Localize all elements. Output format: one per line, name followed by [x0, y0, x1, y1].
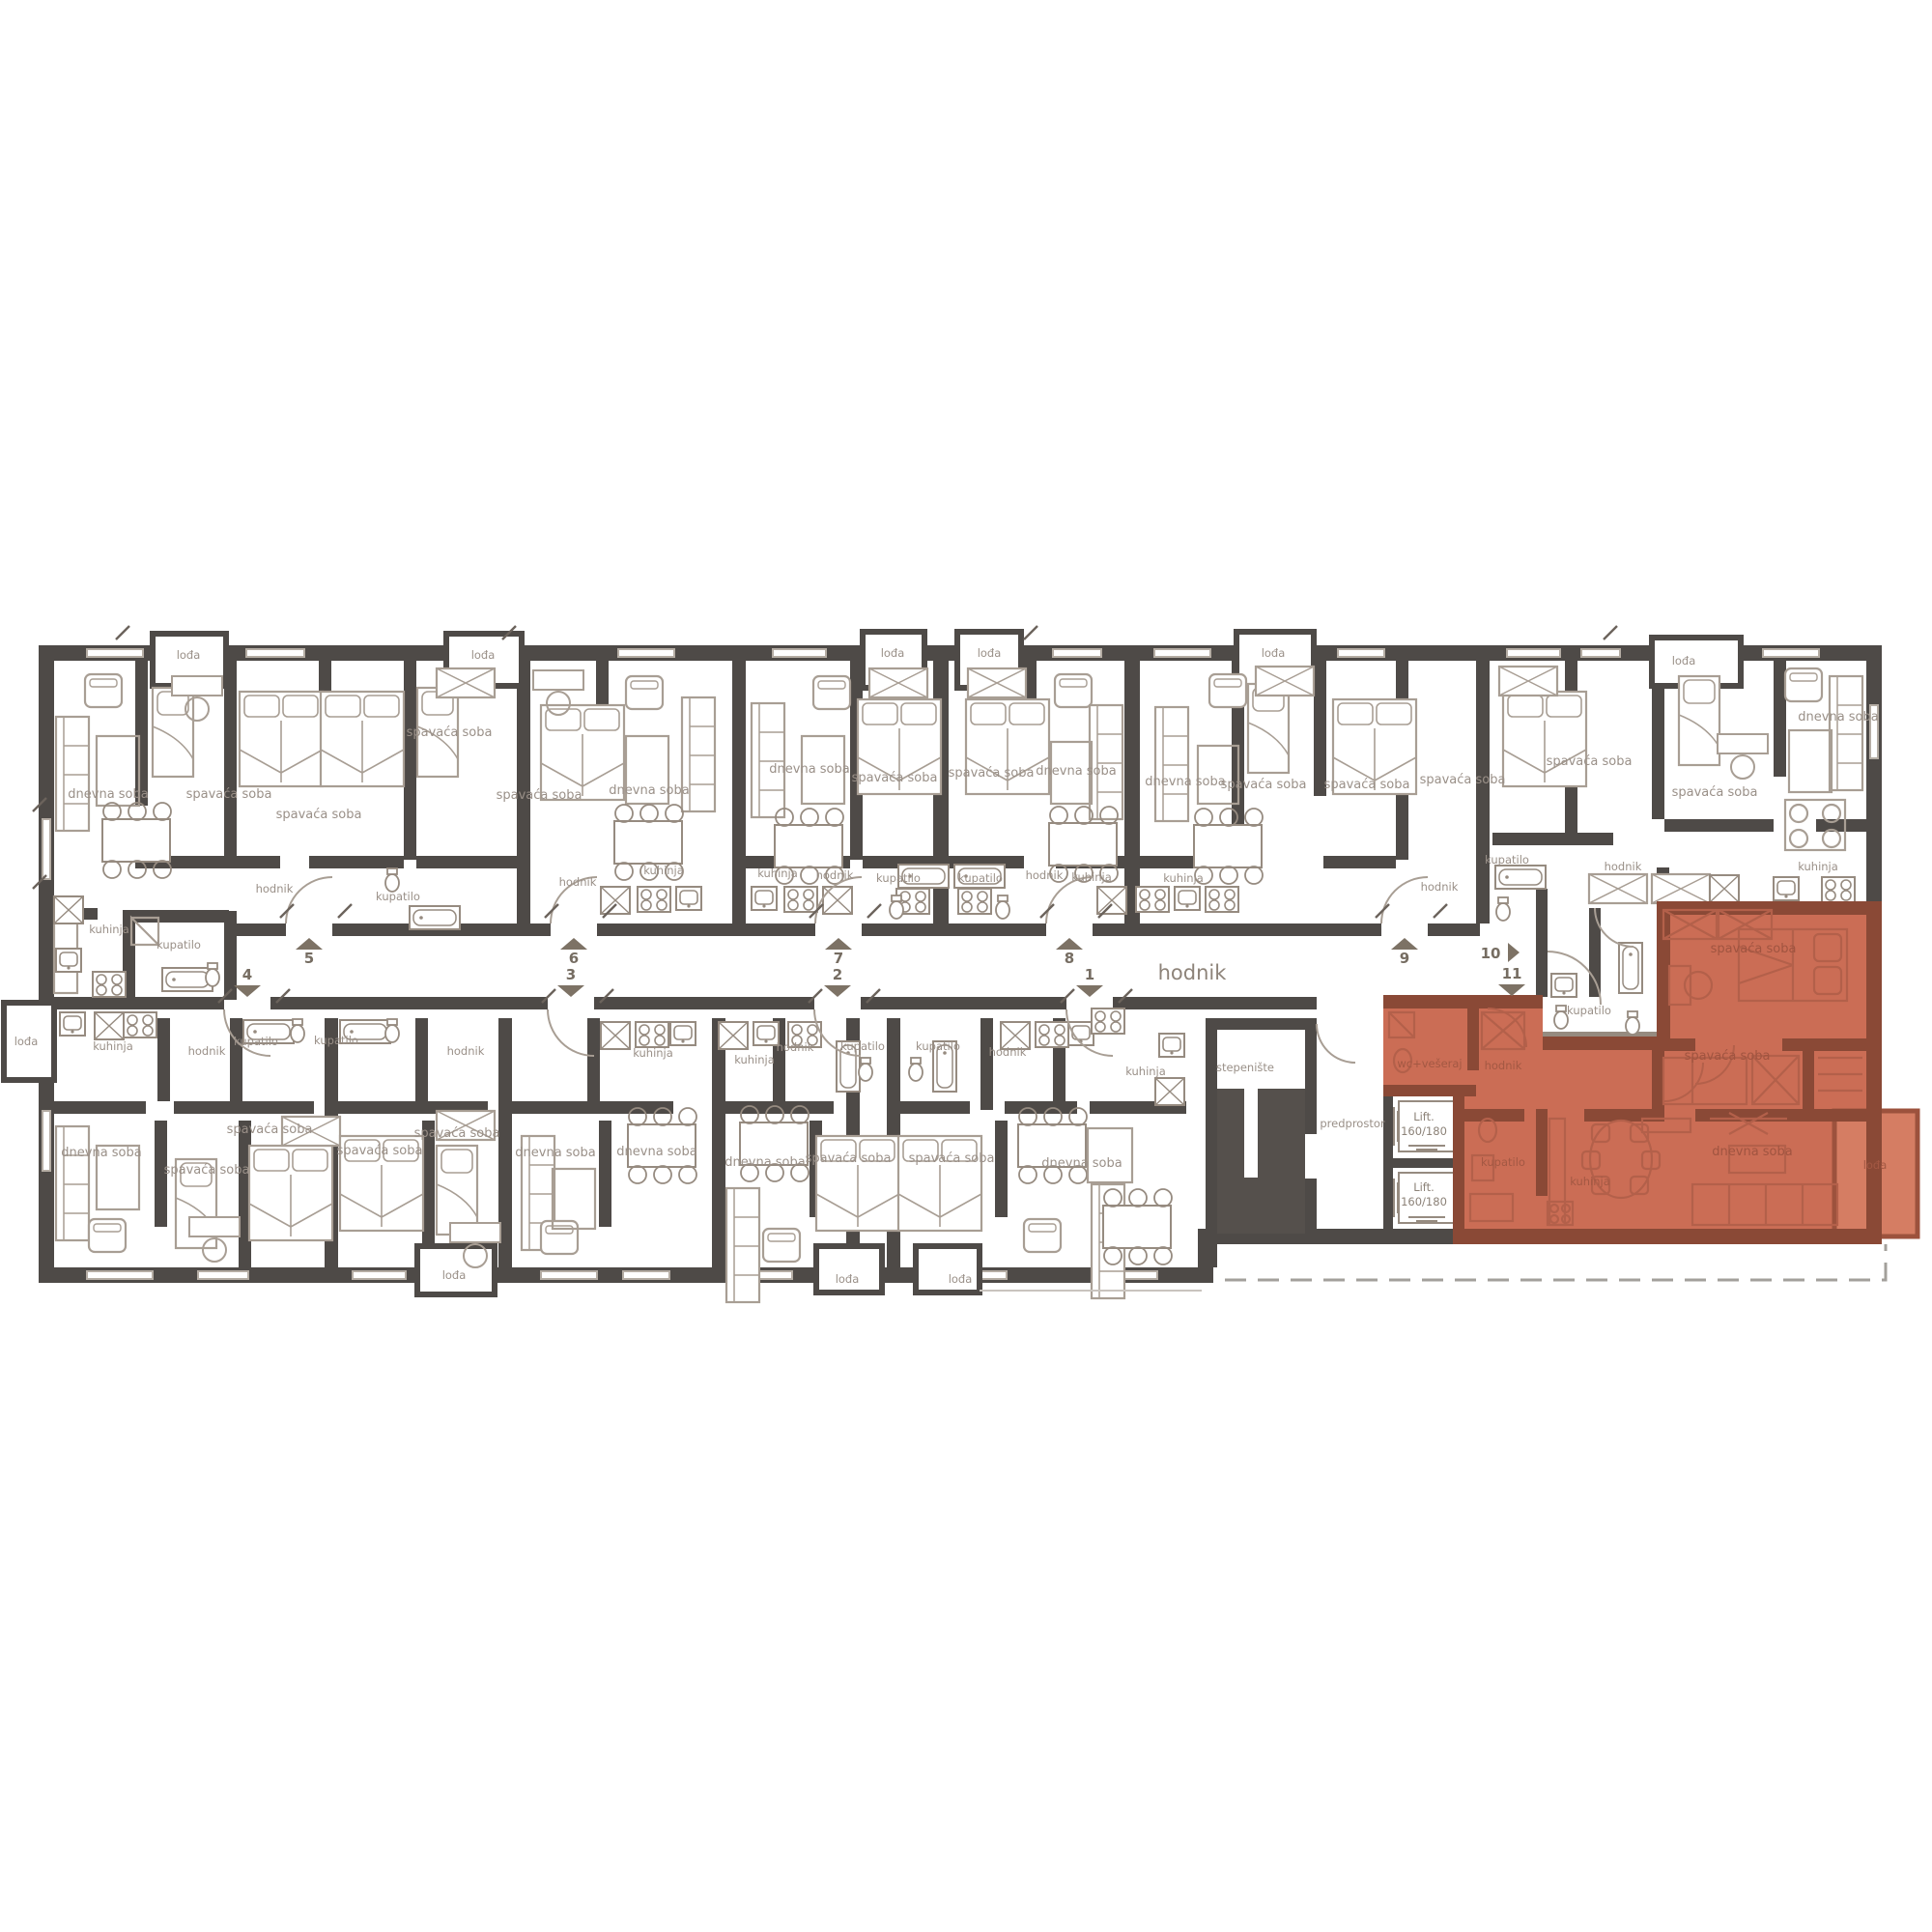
- room-label: spavaća soba: [276, 808, 362, 822]
- room-label: kuhinja: [1798, 860, 1838, 873]
- room-label: spavaća soba: [164, 1163, 250, 1178]
- room-label: spavaća soba: [186, 787, 272, 802]
- staircase: [1206, 1018, 1317, 1267]
- unit-marker-11: 11: [1498, 965, 1525, 996]
- room-label: dnevna soba: [61, 1146, 141, 1160]
- room-label: hodnik: [447, 1044, 485, 1058]
- room-label: spavaća soba: [497, 788, 582, 803]
- room-label: kupatilo: [916, 1039, 960, 1053]
- room-label: dnevna soba: [724, 1155, 805, 1170]
- room-label: dnevna soba: [1145, 775, 1225, 789]
- unit-11-highlighted[interactable]: [1383, 901, 1918, 1244]
- room-label: kupatilo: [376, 890, 420, 903]
- room-label: dnevna soba: [1798, 710, 1878, 724]
- entrance-arrow-right: [1508, 943, 1520, 962]
- room-label: hodnik: [816, 868, 854, 882]
- room-label: hodnik: [989, 1045, 1027, 1059]
- room-label: spavaća soba: [852, 771, 938, 785]
- svg-text:3: 3: [566, 966, 576, 983]
- room-label: lođa: [442, 1268, 467, 1282]
- entrance-arrow-down: [824, 985, 851, 997]
- svg-text:4: 4: [242, 966, 252, 983]
- room-label: spavaća soba: [806, 1151, 892, 1166]
- room-label: spavaća soba: [1221, 778, 1307, 792]
- entrance-arrow-down: [234, 985, 261, 997]
- room-label: spavaća soba: [1324, 778, 1410, 792]
- room-label: dnevna soba: [68, 787, 148, 802]
- svg-text:2: 2: [833, 966, 842, 983]
- unit-marker-2: 2: [824, 966, 851, 997]
- room-label: lođa: [1262, 646, 1286, 660]
- unit-marker-1: 1: [1076, 966, 1103, 997]
- room-label: kuhinja: [633, 1046, 673, 1060]
- unit-marker-9: 9: [1391, 938, 1418, 967]
- room-label: kupatilo: [314, 1034, 358, 1047]
- room-label: kuhinja: [1071, 870, 1112, 884]
- entrance-arrow-up: [1056, 938, 1083, 950]
- room-label: kupatilo: [876, 871, 921, 885]
- room-label: lođa: [1863, 1158, 1888, 1172]
- room-label: dnevna soba: [1036, 764, 1116, 779]
- svg-text:9: 9: [1400, 950, 1409, 967]
- room-label: kupatilo: [156, 938, 201, 952]
- room-label: kuhinja: [89, 923, 129, 936]
- room-label: 160/180: [1401, 1124, 1447, 1138]
- room-label: kupatilo: [958, 871, 1003, 885]
- room-label: Lift.: [1413, 1110, 1435, 1123]
- room-label: spavaća soba: [407, 725, 493, 740]
- room-label: dnevna soba: [769, 762, 849, 777]
- svg-text:11: 11: [1502, 965, 1522, 982]
- room-label: spavaća soba: [414, 1126, 500, 1141]
- unit-marker-4: 4: [234, 966, 261, 997]
- unit-marker-7: 7: [825, 938, 852, 967]
- svg-text:8: 8: [1065, 950, 1074, 967]
- room-label: spavaća soba: [949, 766, 1035, 781]
- room-label: lođa: [978, 646, 1002, 660]
- room-label: kuhinja: [1570, 1175, 1610, 1188]
- floor-plan: hodnik lođalođalođalođalođalođadnevna so…: [0, 0, 1932, 1932]
- room-label: spavaća soba: [1547, 754, 1633, 769]
- room-label: hodnik: [1026, 868, 1064, 882]
- room-label: spavaća soba: [1711, 942, 1797, 956]
- room-label: 160/180: [1401, 1195, 1447, 1208]
- room-label: spavaća soba: [1685, 1049, 1771, 1064]
- room-label: dnevna soba: [1712, 1145, 1792, 1159]
- room-label: dnevna soba: [1041, 1156, 1122, 1171]
- room-label: kuhinja: [734, 1053, 775, 1066]
- room-label: lođa: [1672, 654, 1696, 668]
- room-label: stepenište: [1216, 1061, 1274, 1074]
- room-label: kuhinja: [757, 867, 798, 880]
- entrance-arrow-up: [296, 938, 323, 950]
- room-label: hodnik: [1605, 860, 1642, 873]
- room-label: spavaća soba: [1672, 785, 1758, 800]
- entrance-arrow-down: [557, 985, 584, 997]
- room-label: kupatilo: [840, 1039, 885, 1053]
- room-label: dnevna soba: [616, 1145, 696, 1159]
- unit-marker-10: 10: [1481, 943, 1520, 962]
- room-label: hodnik: [1421, 880, 1459, 894]
- room-label: hodnik: [559, 875, 597, 889]
- room-label: kupatilo: [1485, 853, 1529, 867]
- room-label: wc+vešeraj: [1397, 1057, 1462, 1070]
- svg-text:1: 1: [1085, 966, 1094, 983]
- unit-marker-3: 3: [557, 966, 584, 997]
- room-label: spavaća soba: [337, 1144, 423, 1158]
- room-label: spavaća soba: [909, 1151, 995, 1166]
- svg-text:10: 10: [1481, 945, 1501, 962]
- room-label: kuhinja: [1125, 1065, 1166, 1078]
- room-label: spavaća soba: [1420, 773, 1506, 787]
- room-label: lođa: [881, 646, 905, 660]
- unit-marker-8: 8: [1056, 938, 1083, 967]
- room-label: kuhinja: [1163, 871, 1204, 885]
- room-label: lođa: [836, 1272, 860, 1286]
- room-label: dnevna soba: [609, 783, 689, 798]
- room-label: dnevna soba: [515, 1146, 595, 1160]
- room-label: kuhinja: [93, 1039, 133, 1053]
- room-label: spavaća soba: [227, 1122, 313, 1137]
- unit-marker-6: 6: [560, 938, 587, 967]
- entrance-arrow-down: [1498, 984, 1525, 996]
- svg-text:7: 7: [834, 950, 843, 967]
- entrance-arrow-up: [1391, 938, 1418, 950]
- room-label: kupatilo: [234, 1035, 278, 1048]
- entrance-arrow-up: [825, 938, 852, 950]
- room-label: lođa: [14, 1035, 39, 1048]
- room-label: lođa: [471, 648, 496, 662]
- room-label: kupatilo: [1481, 1155, 1525, 1169]
- unit-markers: 5463728191011: [234, 938, 1525, 997]
- room-label: lođa: [177, 648, 201, 662]
- room-label: predprostor: [1320, 1117, 1384, 1130]
- room-label: hodnik: [188, 1044, 226, 1058]
- svg-text:5: 5: [304, 950, 314, 967]
- room-label: hodnik: [1485, 1059, 1522, 1072]
- corridor-label: hodnik: [1158, 961, 1228, 984]
- room-label: hodnik: [256, 882, 294, 895]
- room-label: kupatilo: [1567, 1004, 1611, 1017]
- unit-marker-5: 5: [296, 938, 323, 967]
- entrance-arrow-up: [560, 938, 587, 950]
- room-label: hodnik: [777, 1040, 814, 1054]
- corridor-walls: [41, 911, 1480, 1009]
- room-label: Lift.: [1413, 1180, 1435, 1194]
- floor-plan-screenshot: hodnik lođalođalođalođalođalođadnevna so…: [0, 0, 1932, 1932]
- room-label: lođa: [949, 1272, 973, 1286]
- svg-text:6: 6: [569, 950, 579, 967]
- room-label: kuhinja: [643, 864, 684, 877]
- entrance-arrow-down: [1076, 985, 1103, 997]
